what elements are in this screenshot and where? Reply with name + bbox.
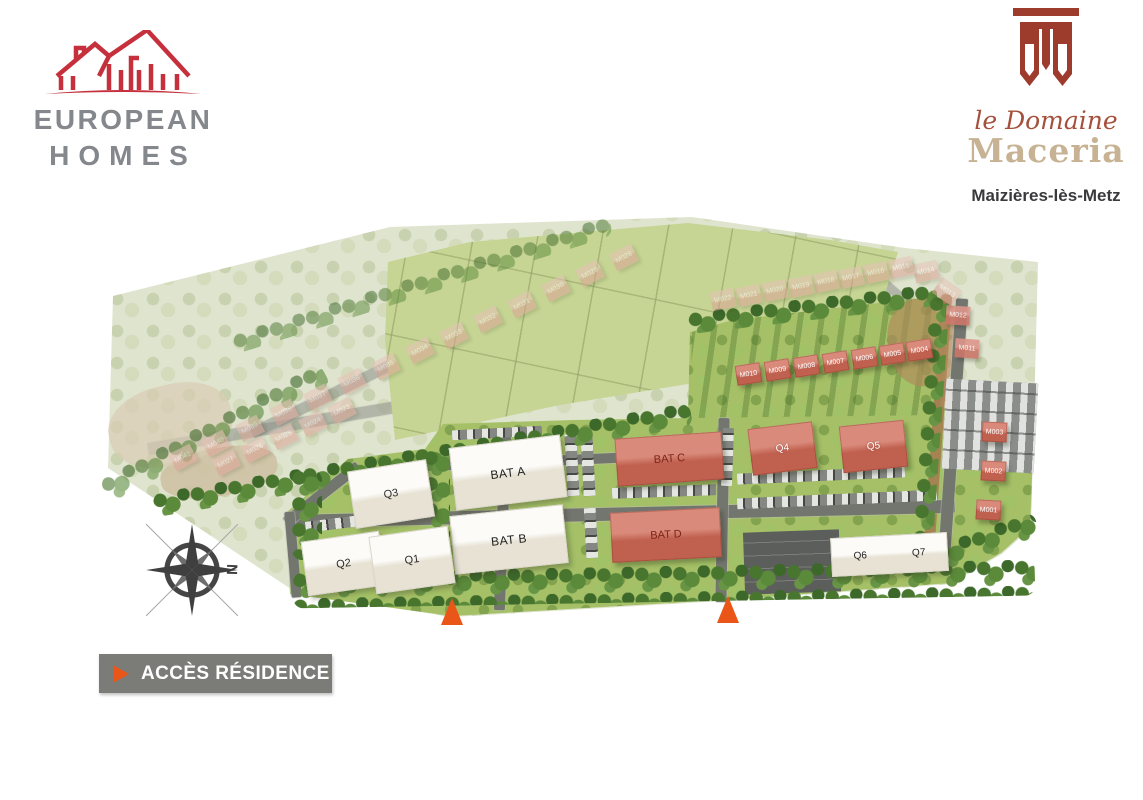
building-m014: M014 — [912, 260, 939, 284]
building-m031: M031 — [507, 291, 537, 319]
page: EUROPEAN HOMES le Domaine Maceria Maiziè… — [0, 0, 1143, 800]
building-q6: Q6Q7 — [830, 532, 949, 577]
building-m024: M024 — [298, 410, 328, 438]
building-m003: M003 — [981, 421, 1007, 442]
building-m013: M013 — [932, 277, 963, 306]
building-m029: M029 — [575, 260, 605, 288]
building-m036: M036 — [337, 368, 367, 396]
building-bat-a: BAT A — [449, 434, 568, 510]
building-m041: M041 — [168, 444, 198, 472]
access-marker-west — [441, 598, 463, 625]
building-m015: M015 — [887, 256, 914, 280]
building-q1: Q1 — [368, 526, 455, 595]
building-m018: M018 — [812, 270, 839, 294]
building-m004: M004 — [906, 338, 934, 362]
building-m006: M006 — [851, 346, 879, 370]
building-m030: M030 — [541, 275, 571, 303]
building-bat-b: BAT B — [449, 504, 569, 575]
building-bat-c: BAT C — [614, 431, 724, 486]
building-m033: M033 — [439, 322, 469, 350]
building-m005: M005 — [879, 342, 907, 366]
compass-north-label: N — [223, 564, 240, 575]
building-m009: M009 — [764, 358, 792, 382]
building-m021: M021 — [735, 284, 762, 308]
building-m016: M016 — [862, 261, 889, 285]
building-q3: Q3 — [347, 459, 435, 529]
building-m012: M012 — [945, 305, 970, 326]
building-m035: M035 — [371, 353, 401, 381]
building-m019: M019 — [787, 275, 814, 299]
access-legend-label: ACCÈS RÉSIDENCE — [141, 663, 330, 685]
building-m008: M008 — [793, 354, 821, 378]
building-m022: M022 — [709, 288, 736, 312]
building-q5: Q5 — [839, 420, 909, 474]
arrow-right-icon — [113, 665, 129, 683]
building-m007: M007 — [822, 350, 850, 374]
building-bat-d: BAT D — [610, 507, 722, 563]
building-m002: M002 — [980, 460, 1006, 481]
building-m010: M010 — [735, 362, 763, 386]
access-marker-east — [717, 596, 739, 623]
building-m017: M017 — [837, 266, 864, 290]
building-m011: M011 — [954, 338, 979, 359]
access-legend: ACCÈS RÉSIDENCE — [99, 654, 332, 693]
building-m001: M001 — [975, 499, 1001, 520]
building-m025: M025 — [269, 423, 299, 451]
building-m028: M028 — [609, 244, 639, 272]
building-m038: M038 — [269, 399, 299, 427]
building-m020: M020 — [761, 279, 788, 303]
building-m034: M034 — [405, 337, 435, 365]
building-m032: M032 — [473, 306, 503, 334]
building-q4: Q4 — [747, 421, 817, 476]
